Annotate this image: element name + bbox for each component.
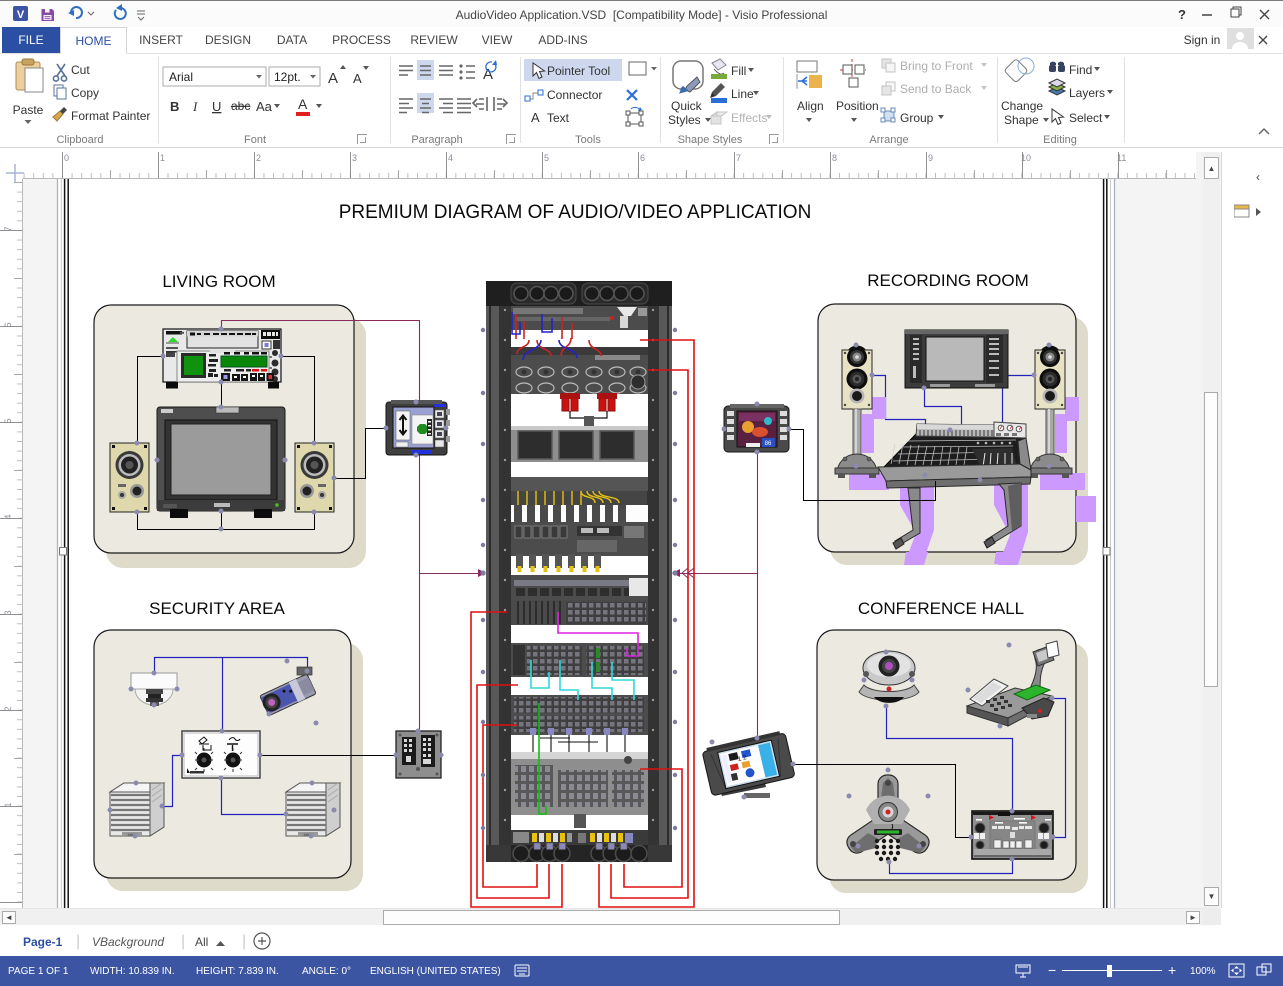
- svg-text:Fill: Fill: [731, 64, 746, 78]
- svg-text:A: A: [328, 70, 338, 87]
- svg-text:Change: Change: [1001, 99, 1043, 113]
- svg-text:86: 86: [765, 441, 772, 447]
- svg-text:Layers: Layers: [1069, 86, 1105, 100]
- svg-text:Arial: Arial: [169, 70, 193, 84]
- svg-text:Select: Select: [1069, 111, 1103, 125]
- svg-text:Effects: Effects: [731, 111, 767, 125]
- svg-text:A: A: [531, 110, 540, 125]
- svg-text:Format Painter: Format Painter: [71, 109, 150, 123]
- svg-text:Paste: Paste: [13, 103, 44, 117]
- svg-text:Styles: Styles: [668, 113, 701, 127]
- svg-text:CONFERENCE HALL: CONFERENCE HALL: [858, 599, 1024, 618]
- svg-text:Pointer Tool: Pointer Tool: [547, 64, 610, 78]
- svg-text:SECURITY AREA: SECURITY AREA: [149, 599, 285, 618]
- svg-text:A: A: [483, 66, 493, 83]
- svg-text:A: A: [298, 96, 308, 112]
- svg-text:Quick: Quick: [671, 99, 703, 113]
- svg-text:V: V: [17, 9, 25, 21]
- svg-text:abc: abc: [231, 99, 250, 113]
- svg-text:B: B: [170, 99, 179, 114]
- svg-text:Send to Back: Send to Back: [900, 82, 972, 96]
- svg-text:PREMIUM DIAGRAM OF AUDIO/VIDEO: PREMIUM DIAGRAM OF AUDIO/VIDEO APPLICATI…: [339, 202, 812, 223]
- svg-text:Align: Align: [797, 99, 824, 113]
- svg-text:Connector: Connector: [547, 88, 602, 102]
- svg-text:RECORDING ROOM: RECORDING ROOM: [867, 271, 1029, 290]
- svg-text:Find: Find: [1069, 63, 1092, 77]
- svg-text:Bring to Front: Bring to Front: [900, 59, 973, 73]
- svg-text:Aa: Aa: [256, 99, 273, 114]
- svg-text:?: ?: [1178, 7, 1186, 22]
- svg-text:Cut: Cut: [71, 63, 90, 77]
- svg-text:Copy: Copy: [71, 86, 99, 100]
- svg-text:Group: Group: [900, 111, 934, 125]
- svg-text:Shape: Shape: [1004, 113, 1039, 127]
- svg-text:A: A: [353, 71, 362, 86]
- svg-text:U: U: [212, 99, 221, 114]
- svg-text:LIVING ROOM: LIVING ROOM: [162, 272, 275, 291]
- svg-text:Position: Position: [836, 99, 879, 113]
- svg-text:Text: Text: [547, 111, 570, 125]
- svg-text:I: I: [192, 99, 198, 114]
- svg-text:12pt.: 12pt.: [274, 70, 301, 84]
- svg-text:Line: Line: [731, 87, 754, 101]
